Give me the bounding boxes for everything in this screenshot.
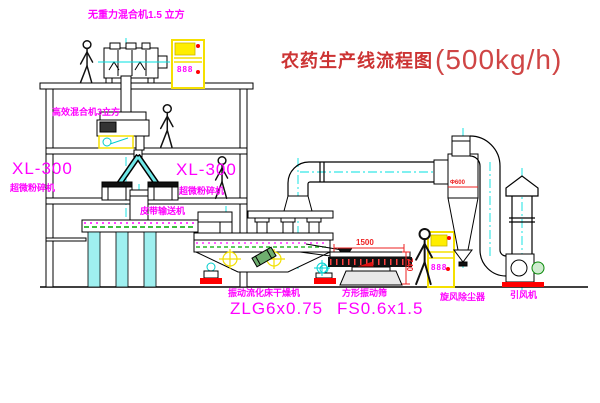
indicator-light (447, 236, 451, 240)
panel2-display: 888 (431, 264, 447, 272)
control-cabinet-1 (172, 40, 204, 88)
label-sieve-name: 方形振动筛 (342, 289, 387, 298)
label-dryer-name: 振动流化床干燥机 (228, 289, 300, 298)
belt-conveyor-machine (82, 220, 198, 287)
fluid-bed-dryer-machine (194, 196, 352, 284)
flow-diagram-canvas: 农药生产线流程图 (500kg/h) 无重力混合机1.5 立方 高效混合机3立方… (0, 0, 600, 403)
label-fan: 引风机 (510, 291, 537, 300)
label-cyclone: 旋风除尘器 (440, 293, 485, 302)
mill-left-machine (102, 182, 132, 200)
label-belt-conveyor: 皮带输送机 (140, 207, 185, 216)
mill-right-machine (148, 182, 178, 200)
label-high-eff-mixer: 高效混合机3立方 (52, 108, 120, 117)
dimension-sieve-length: 1500 (356, 239, 374, 247)
panel1-display: 888 (177, 66, 193, 74)
title-capacity: (500kg/h) (435, 44, 562, 76)
exhaust-duct (288, 162, 436, 196)
label-mill-left-model: XL-300 (12, 160, 73, 177)
label-sieve-model: FS0.6x1.5 (337, 300, 424, 317)
title-text: 农药生产线流程图 (281, 47, 433, 73)
y-splitter-pipes (119, 150, 157, 184)
label-gravity-free-mixer: 无重力混合机1.5 立方 (88, 11, 185, 21)
label-dryer-model: ZLG6x0.75 (230, 300, 323, 317)
page-title: 农药生产线流程图 (500kg/h) (281, 44, 562, 76)
indicator-light (196, 44, 200, 48)
label-mill-center-name: 超微粉碎机 (179, 187, 224, 196)
label-mill-left-name: 超微粉碎机 (10, 184, 55, 193)
control-cabinet-2 (428, 232, 454, 287)
gravity-free-mixer-machine (98, 43, 170, 114)
induced-draft-fan-machine (502, 254, 544, 287)
dimension-sieve-height: 740 (405, 258, 413, 271)
high-efficiency-mixer-machine (97, 112, 149, 150)
dimension-cyclone-diameter: Φ600 (450, 180, 465, 186)
label-mill-center-model: XL-300 (176, 161, 237, 178)
indicator-light (196, 70, 200, 74)
